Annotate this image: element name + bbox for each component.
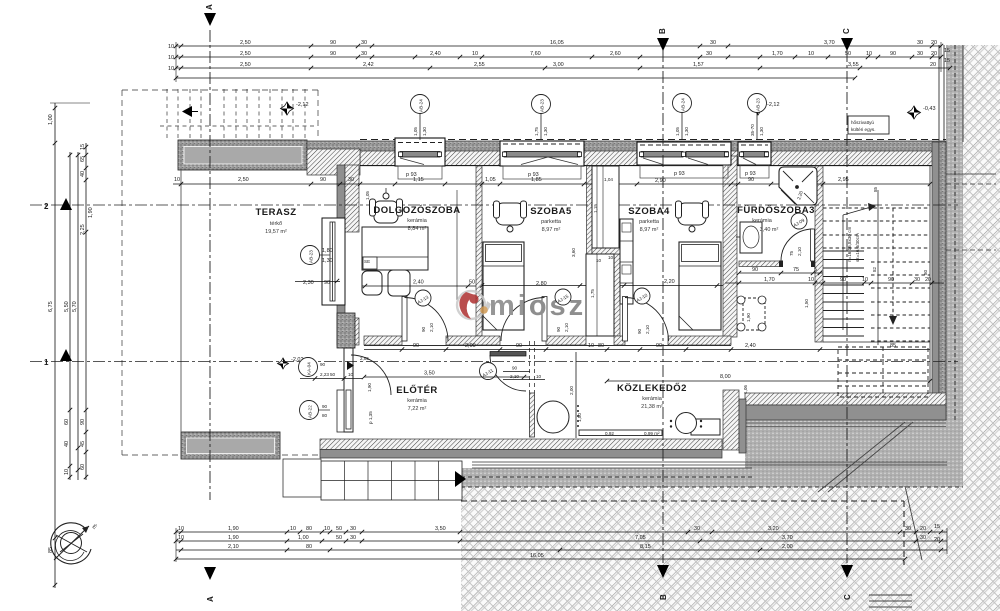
svg-text:2,50: 2,50 (240, 62, 251, 68)
svg-text:-2,12: -2,12 (767, 102, 780, 108)
svg-text:5,50: 5,50 (64, 301, 70, 312)
svg-text:8,97 m²: 8,97 m² (542, 227, 561, 233)
svg-text:p 93: p 93 (745, 171, 756, 177)
svg-text:3,00: 3,00 (553, 62, 564, 68)
svg-text:p 93: p 93 (528, 172, 539, 178)
svg-text:1,90: 1,90 (367, 383, 372, 392)
svg-text:7,60: 7,60 (530, 51, 541, 57)
svg-text:kerámia: kerámia (752, 218, 773, 224)
svg-text:15: 15 (80, 144, 86, 150)
svg-text:35-70: 35-70 (750, 124, 755, 136)
svg-text:30: 30 (694, 526, 700, 532)
svg-text:90: 90 (320, 362, 326, 367)
svg-text:p 93: p 93 (674, 171, 685, 177)
svg-text:30: 30 (920, 535, 926, 541)
svg-text:-0,43: -0,43 (923, 106, 936, 112)
svg-text:1,50: 1,50 (577, 413, 582, 422)
svg-text:2,50: 2,50 (240, 51, 251, 57)
svg-text:50: 50 (336, 526, 342, 532)
svg-text:1,30: 1,30 (759, 127, 764, 136)
svg-text:85: 85 (48, 547, 54, 553)
svg-text:50: 50 (336, 535, 342, 541)
svg-text:7,22 m²: 7,22 m² (408, 406, 427, 412)
svg-text:90: 90 (516, 343, 522, 349)
svg-text:hőszivattyú: hőszivattyú (851, 120, 874, 125)
svg-text:30: 30 (348, 177, 354, 183)
svg-text:1,05: 1,05 (365, 191, 370, 200)
svg-text:80: 80 (598, 343, 604, 349)
svg-text:2,90: 2,90 (655, 178, 666, 184)
svg-text:2,20: 2,20 (664, 279, 675, 285)
svg-text:2,40: 2,40 (745, 343, 756, 349)
svg-text:1: 1 (44, 358, 49, 367)
svg-text:2,10: 2,10 (510, 374, 519, 379)
svg-text:parketta: parketta (639, 219, 660, 225)
svg-text:10: 10 (174, 177, 180, 183)
svg-text:10: 10 (178, 535, 184, 541)
svg-text:19,57 m²: 19,57 m² (265, 229, 287, 235)
svg-text:1,30: 1,30 (684, 127, 689, 136)
svg-text:1,75: 1,75 (590, 289, 595, 298)
svg-text:3,70: 3,70 (824, 40, 835, 46)
svg-text:8,00: 8,00 (720, 374, 731, 380)
svg-text:3,60: 3,60 (571, 248, 576, 257)
svg-text:15: 15 (934, 524, 940, 530)
svg-text:2,10: 2,10 (797, 247, 802, 256)
svg-text:8,97 m²: 8,97 m² (640, 227, 659, 233)
svg-text:1,90: 1,90 (746, 313, 751, 322)
svg-text:B: B (658, 28, 667, 34)
svg-text:ELŐTÉR: ELŐTÉR (396, 384, 438, 396)
svg-text:1,90: 1,90 (228, 535, 239, 541)
svg-text:térkő: térkő (270, 221, 282, 227)
svg-text:-2,12: -2,12 (296, 102, 309, 108)
svg-text:30: 30 (361, 40, 367, 46)
svg-text:3,55: 3,55 (848, 62, 859, 68)
svg-text:AB-23: AB-23 (540, 99, 545, 112)
svg-text:30: 30 (350, 535, 356, 541)
svg-text:5,70: 5,70 (72, 301, 78, 312)
svg-text:1,05: 1,05 (675, 127, 680, 136)
svg-text:90: 90 (330, 51, 336, 57)
svg-text:SZOBA5: SZOBA5 (530, 206, 572, 217)
svg-text:90: 90 (330, 40, 336, 46)
svg-text:85: 85 (873, 186, 878, 192)
svg-text:20: 20 (920, 526, 926, 532)
svg-text:1,15: 1,15 (593, 204, 598, 213)
svg-text:3,50: 3,50 (424, 371, 435, 377)
svg-text:6,75: 6,75 (48, 301, 54, 312)
svg-text:80: 80 (322, 413, 328, 418)
svg-text:82: 82 (872, 266, 877, 272)
svg-text:2,23: 2,23 (320, 372, 329, 377)
svg-text:10: 10 (472, 51, 478, 57)
svg-text:2,25: 2,25 (80, 224, 86, 235)
svg-text:10: 10 (808, 277, 814, 283)
svg-text:1,80: 1,80 (322, 248, 333, 254)
svg-text:1,05: 1,05 (485, 177, 496, 183)
svg-text:60: 60 (64, 419, 70, 425)
svg-text:B: B (659, 594, 668, 600)
svg-text:2,95: 2,95 (838, 177, 849, 183)
svg-text:2,42: 2,42 (363, 62, 374, 68)
svg-text:50: 50 (845, 51, 851, 57)
svg-text:50: 50 (330, 372, 336, 377)
svg-text:30: 30 (917, 40, 923, 46)
svg-text:AB-23: AB-23 (309, 250, 314, 263)
svg-text:2,55: 2,55 (474, 62, 485, 68)
svg-text:2,30: 2,30 (303, 280, 314, 286)
svg-text:A: A (205, 4, 214, 10)
svg-text:2,60: 2,60 (610, 51, 621, 57)
svg-text:0,99 m²: 0,99 m² (644, 431, 660, 436)
svg-text:16,05: 16,05 (550, 40, 564, 46)
svg-text:SZOBA4: SZOBA4 (628, 206, 670, 217)
svg-text:10: 10 (168, 55, 174, 61)
svg-text:2,10: 2,10 (429, 323, 434, 332)
svg-text:40: 40 (80, 171, 86, 177)
svg-text:C: C (842, 28, 851, 34)
svg-text:sz=16,8/30cm: sz=16,8/30cm (855, 233, 860, 262)
svg-text:1,75: 1,75 (534, 127, 539, 136)
svg-text:65: 65 (80, 156, 86, 162)
svg-text:90: 90 (322, 404, 328, 409)
svg-text:16,05: 16,05 (530, 553, 544, 559)
svg-text:90: 90 (656, 343, 662, 349)
svg-text:21,38 m²: 21,38 m² (641, 404, 663, 410)
svg-text:1,30: 1,30 (422, 127, 427, 136)
svg-text:30: 30 (350, 526, 356, 532)
svg-text:parketta: parketta (541, 219, 562, 225)
svg-text:AB-23: AB-23 (756, 98, 761, 111)
svg-text:90: 90 (890, 51, 896, 57)
svg-text:90: 90 (556, 326, 561, 332)
svg-text:kerámia: kerámia (407, 218, 428, 224)
svg-text:2,10: 2,10 (228, 544, 239, 550)
svg-text:AB-24: AB-24 (681, 98, 686, 111)
svg-text:p 1,35: p 1,35 (368, 411, 373, 424)
svg-text:3,20: 3,20 (768, 526, 779, 532)
svg-text:15: 15 (944, 48, 950, 54)
svg-text:10: 10 (290, 526, 296, 532)
svg-text:80: 80 (923, 269, 928, 275)
svg-text:1,57: 1,57 (693, 62, 704, 68)
svg-text:45: 45 (80, 441, 86, 447)
svg-text:10: 10 (808, 51, 814, 57)
svg-text:20: 20 (930, 62, 936, 68)
svg-text:2,40: 2,40 (413, 280, 424, 286)
svg-text:60: 60 (80, 464, 86, 470)
svg-text:p 93: p 93 (406, 172, 417, 178)
svg-text:KÖZLEKEDŐ2: KÖZLEKEDŐ2 (617, 382, 687, 394)
svg-text:30: 30 (905, 526, 911, 532)
svg-text:1,50: 1,50 (804, 299, 809, 308)
svg-text:90: 90 (748, 177, 754, 183)
svg-text:20: 20 (931, 40, 937, 46)
svg-text:3,70: 3,70 (782, 535, 793, 541)
svg-text:0,92: 0,92 (605, 431, 614, 436)
svg-text:kerámia: kerámia (407, 398, 428, 404)
svg-text:30: 30 (710, 40, 716, 46)
svg-text:n=16 16,8x30 cm: n=16 16,8x30 cm (847, 226, 852, 262)
svg-text:2,80: 2,80 (536, 281, 547, 287)
svg-text:kültéri egys.: kültéri egys. (851, 127, 876, 132)
svg-text:1,70: 1,70 (772, 51, 783, 57)
svg-text:AB-24: AB-24 (419, 99, 424, 112)
svg-text:10: 10 (64, 469, 70, 475)
svg-text:1,30: 1,30 (322, 258, 333, 264)
svg-text:80: 80 (306, 526, 312, 532)
svg-text:10: 10 (178, 526, 184, 532)
svg-text:10: 10 (324, 526, 330, 532)
svg-text:DOLGOZÓSZOBA: DOLGOZÓSZOBA (373, 204, 460, 216)
svg-text:2,50: 2,50 (240, 40, 251, 46)
svg-text:kerámia: kerámia (642, 396, 663, 402)
svg-text:TERASZ: TERASZ (256, 207, 297, 218)
svg-text:A: A (206, 596, 215, 602)
svg-text:miosz: miosz (489, 290, 586, 322)
svg-text:1,04: 1,04 (604, 177, 613, 182)
svg-text:2,00: 2,00 (465, 343, 476, 349)
svg-text:5: 5 (814, 267, 817, 273)
svg-text:C: C (843, 594, 852, 600)
svg-text:1,30: 1,30 (543, 127, 548, 136)
svg-text:SE: SE (364, 259, 370, 264)
svg-text:8,15: 8,15 (640, 544, 651, 550)
svg-text:2,00: 2,00 (782, 544, 793, 550)
svg-text:75: 75 (793, 267, 799, 273)
svg-text:85: 85 (890, 343, 896, 349)
svg-text:3,40 m²: 3,40 m² (760, 227, 779, 233)
svg-text:30: 30 (361, 51, 367, 57)
svg-text:10: 10 (608, 255, 614, 260)
svg-text:1,06: 1,06 (743, 385, 748, 394)
svg-text:10: 10 (866, 51, 872, 57)
svg-text:90: 90 (752, 267, 758, 273)
svg-text:1,90: 1,90 (228, 526, 239, 532)
svg-text:10: 10 (536, 374, 542, 379)
svg-text:2,10: 2,10 (564, 323, 569, 332)
svg-text:10: 10 (588, 343, 594, 349)
svg-text:15: 15 (944, 58, 950, 64)
svg-text:30: 30 (914, 277, 920, 283)
svg-text:KA-04: KA-04 (307, 362, 312, 375)
svg-text:10: 10 (168, 44, 174, 50)
svg-text:10: 10 (596, 258, 602, 263)
svg-text:1,05: 1,05 (413, 127, 418, 136)
svg-text:1,00: 1,00 (48, 114, 54, 125)
svg-text:2,00: 2,00 (569, 386, 574, 395)
svg-text:40: 40 (64, 441, 70, 447)
svg-text:20: 20 (934, 537, 940, 543)
svg-text:80: 80 (306, 544, 312, 550)
svg-text:8,84 m²: 8,84 m² (408, 226, 427, 232)
svg-text:10: 10 (168, 66, 174, 72)
svg-text:1,70: 1,70 (764, 277, 775, 283)
svg-text:2,10: 2,10 (645, 325, 650, 334)
svg-text:90: 90 (512, 366, 518, 371)
svg-text:20: 20 (931, 51, 937, 57)
svg-text:90: 90 (80, 419, 86, 425)
svg-text:50: 50 (469, 280, 475, 286)
svg-text:10: 10 (862, 277, 868, 283)
svg-text:7,05: 7,05 (635, 535, 646, 541)
svg-text:3,50: 3,50 (435, 526, 446, 532)
svg-text:AB-22: AB-22 (308, 405, 313, 418)
svg-text:75: 75 (789, 250, 794, 256)
svg-text:2,40: 2,40 (430, 51, 441, 57)
svg-text:1,90: 1,90 (88, 207, 94, 218)
svg-text:90: 90 (320, 177, 326, 183)
svg-text:10: 10 (348, 372, 354, 377)
svg-text:30: 30 (917, 51, 923, 57)
svg-text:1,00: 1,00 (298, 535, 309, 541)
svg-text:90: 90 (637, 328, 642, 334)
svg-text:90: 90 (421, 326, 426, 332)
svg-text:2,85: 2,85 (360, 356, 369, 361)
svg-text:90: 90 (324, 280, 330, 286)
svg-text:30: 30 (706, 51, 712, 57)
svg-text:90: 90 (413, 343, 419, 349)
svg-text:2,50: 2,50 (238, 177, 249, 183)
svg-text:2: 2 (44, 202, 49, 211)
